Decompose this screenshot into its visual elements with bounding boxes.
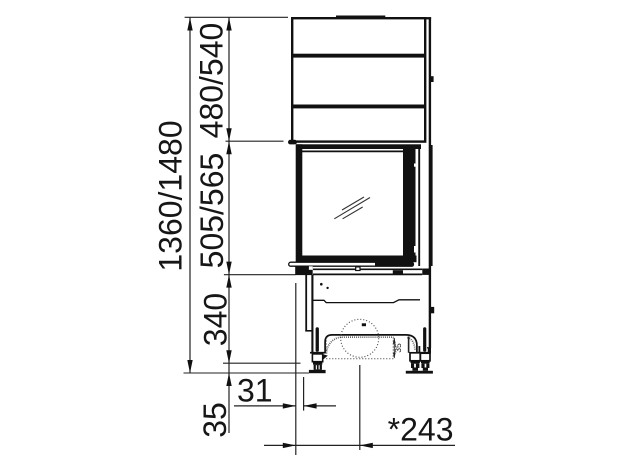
svg-text:35: 35 [197,402,233,438]
svg-text:505/565: 505/565 [194,153,230,269]
svg-text:35: 35 [393,343,403,353]
svg-text:480/540: 480/540 [194,23,230,139]
svg-text:340: 340 [198,293,234,346]
svg-text:*243: *243 [388,412,454,448]
svg-text:1360/1480: 1360/1480 [153,120,189,271]
svg-text:31: 31 [237,373,273,409]
